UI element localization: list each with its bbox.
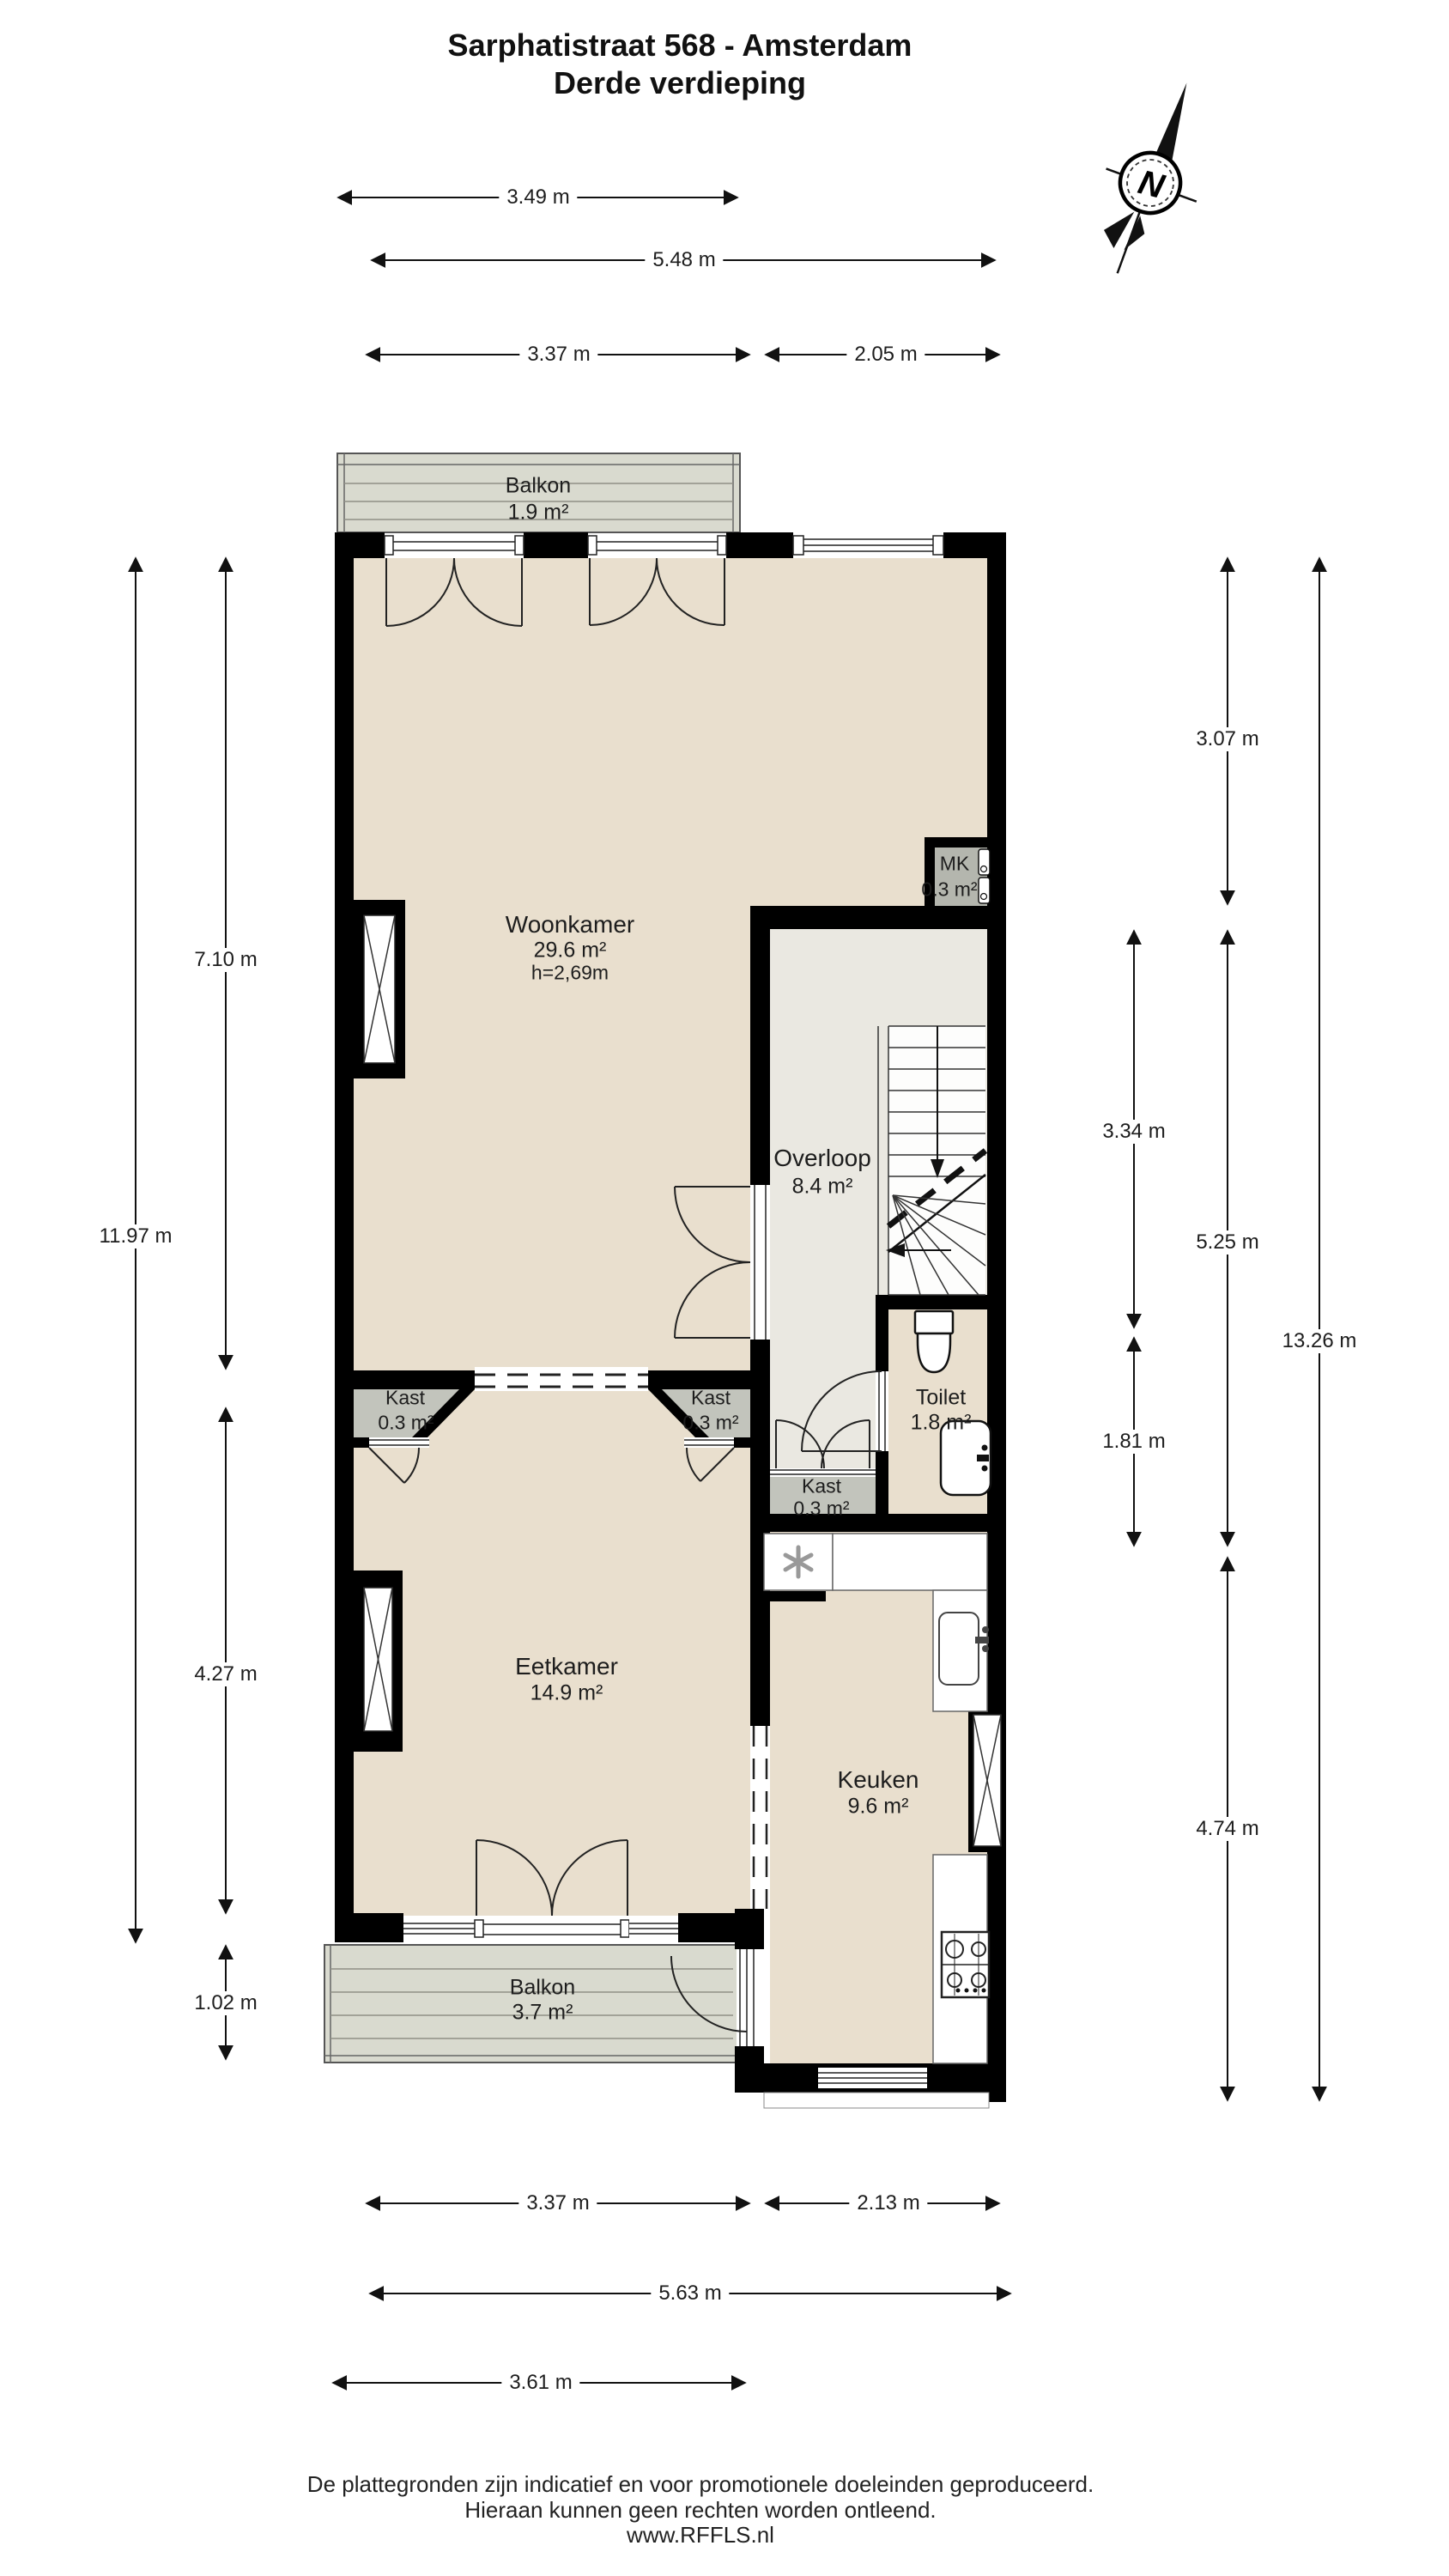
- dimension-label: 3.49 m: [499, 185, 577, 210]
- room-area-kast-rechts: 0.3 m²: [682, 1413, 738, 1433]
- dimension-label: 1.81 m: [1094, 1430, 1173, 1454]
- room-area-kast-links: 0.3 m²: [378, 1413, 433, 1433]
- room-area-kast-overloop: 0.3 m²: [793, 1499, 849, 1519]
- footer-disclaimer-line1: De plattegronden zijn indicatief en voor…: [307, 2473, 1094, 2495]
- dimension-label: 5.25 m: [1188, 1230, 1266, 1255]
- dimension-label: 5.48 m: [645, 248, 723, 272]
- room-label-kast-overloop: Kast: [802, 1477, 841, 1497]
- room-label-woonkamer: Woonkamer: [506, 913, 634, 937]
- dimension-label: 7.10 m: [186, 948, 264, 972]
- footer-disclaimer-line2: Hieraan kunnen geen rechten worden ontle…: [464, 2499, 936, 2521]
- footer-website: www.RFFLS.nl: [627, 2524, 774, 2546]
- room-area-balkon-zuid: 3.7 m²: [512, 2002, 573, 2024]
- room-area-eetkamer: 14.9 m²: [530, 1683, 603, 1704]
- room-label-toilet: Toilet: [916, 1388, 966, 1409]
- dimension-label: 3.07 m: [1188, 727, 1266, 751]
- dimension-label: 2.13 m: [849, 2191, 927, 2215]
- floorplan-page: Sarphatistraat 568 - Amsterdam Derde ver…: [0, 0, 1449, 2576]
- floorplan-drawing: [0, 0, 1449, 2576]
- room-area-toilet: 1.8 m²: [911, 1413, 972, 1434]
- dimension-label: 3.34 m: [1094, 1120, 1173, 1144]
- dimension-label: 1.02 m: [186, 1991, 264, 2015]
- dimension-label: 3.37 m: [518, 2191, 597, 2215]
- room-label-overloop: Overloop: [773, 1146, 871, 1170]
- room-label-mk: MK: [940, 854, 970, 874]
- toilet-icon: [915, 1311, 953, 1372]
- dimension-label: 5.63 m: [651, 2281, 729, 2306]
- room-area-keuken: 9.6 m²: [848, 1796, 909, 1818]
- dimension-label: 11.97 m: [92, 1224, 180, 1249]
- page-title-line2: Derde verdieping: [554, 68, 806, 99]
- room-label-eetkamer: Eetkamer: [515, 1655, 618, 1679]
- room-area-mk: 0.3 m²: [921, 880, 977, 900]
- dimension-label: 13.26 m: [1275, 1329, 1365, 1353]
- room-area-woonkamer: 29.6 m²: [534, 940, 607, 962]
- room-area-balkon-noord: 1.9 m²: [508, 502, 569, 524]
- room-fills: [354, 558, 987, 2063]
- room-label-kast-links: Kast: [385, 1388, 425, 1408]
- room-label-balkon-noord: Balkon: [506, 476, 571, 497]
- dimension-label: 4.74 m: [1188, 1817, 1266, 1841]
- dimension-label: 2.05 m: [846, 343, 925, 367]
- stove-icon: [942, 1932, 989, 1997]
- room-label-balkon-zuid: Balkon: [510, 1978, 575, 1999]
- page-title-line1: Sarphatistraat 568 - Amsterdam: [448, 30, 912, 61]
- room-area-overloop: 8.4 m²: [792, 1176, 853, 1198]
- room-ceiling-woonkamer: h=2,69m: [531, 963, 609, 983]
- dimension-label: 3.61 m: [501, 2371, 579, 2395]
- room-label-kast-rechts: Kast: [691, 1388, 731, 1408]
- room-label-keuken: Keuken: [838, 1768, 919, 1792]
- dimension-label: 4.27 m: [186, 1662, 264, 1686]
- dimension-label: 3.37 m: [519, 343, 597, 367]
